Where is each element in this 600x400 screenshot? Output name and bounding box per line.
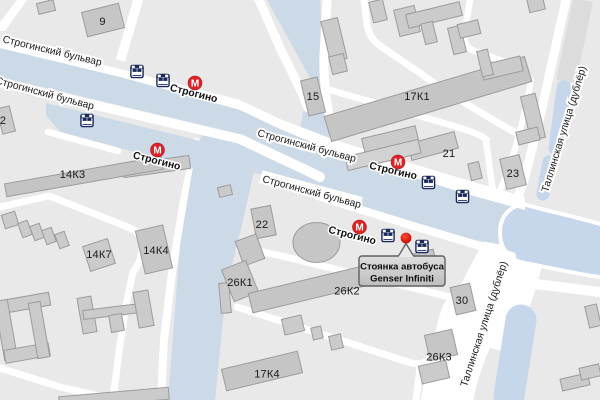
svg-text:Стоянка автобуса: Стоянка автобуса <box>360 262 445 273</box>
svg-text:Genser Infiniti: Genser Infiniti <box>370 274 434 285</box>
svg-text:15: 15 <box>307 91 320 103</box>
svg-text:2: 2 <box>0 115 6 127</box>
svg-text:14К4: 14К4 <box>143 245 169 257</box>
svg-text:14К7: 14К7 <box>86 249 112 261</box>
svg-text:17К4: 17К4 <box>254 369 280 381</box>
svg-text:21: 21 <box>443 148 456 160</box>
svg-text:17К1: 17К1 <box>404 91 430 103</box>
svg-text:9: 9 <box>99 16 105 28</box>
svg-text:22: 22 <box>256 219 269 231</box>
svg-text:30: 30 <box>456 295 469 307</box>
svg-text:26К2: 26К2 <box>334 286 360 298</box>
svg-text:26К3: 26К3 <box>426 352 452 364</box>
svg-text:26К1: 26К1 <box>227 277 253 289</box>
svg-text:14К3: 14К3 <box>60 169 86 181</box>
svg-text:23: 23 <box>507 168 520 180</box>
